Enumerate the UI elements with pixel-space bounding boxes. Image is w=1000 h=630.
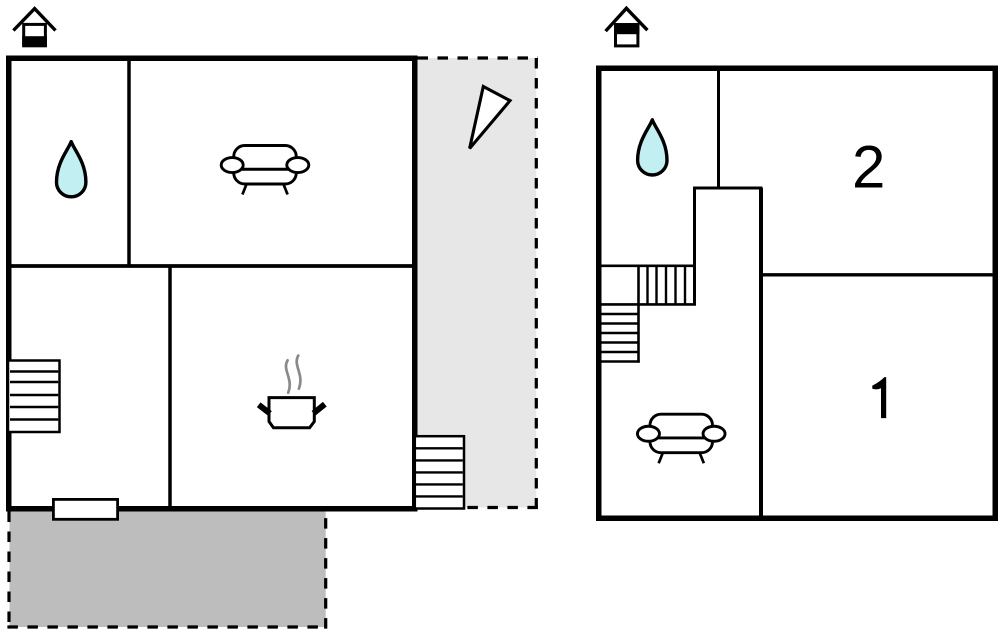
svg-text:2: 2	[852, 134, 885, 201]
